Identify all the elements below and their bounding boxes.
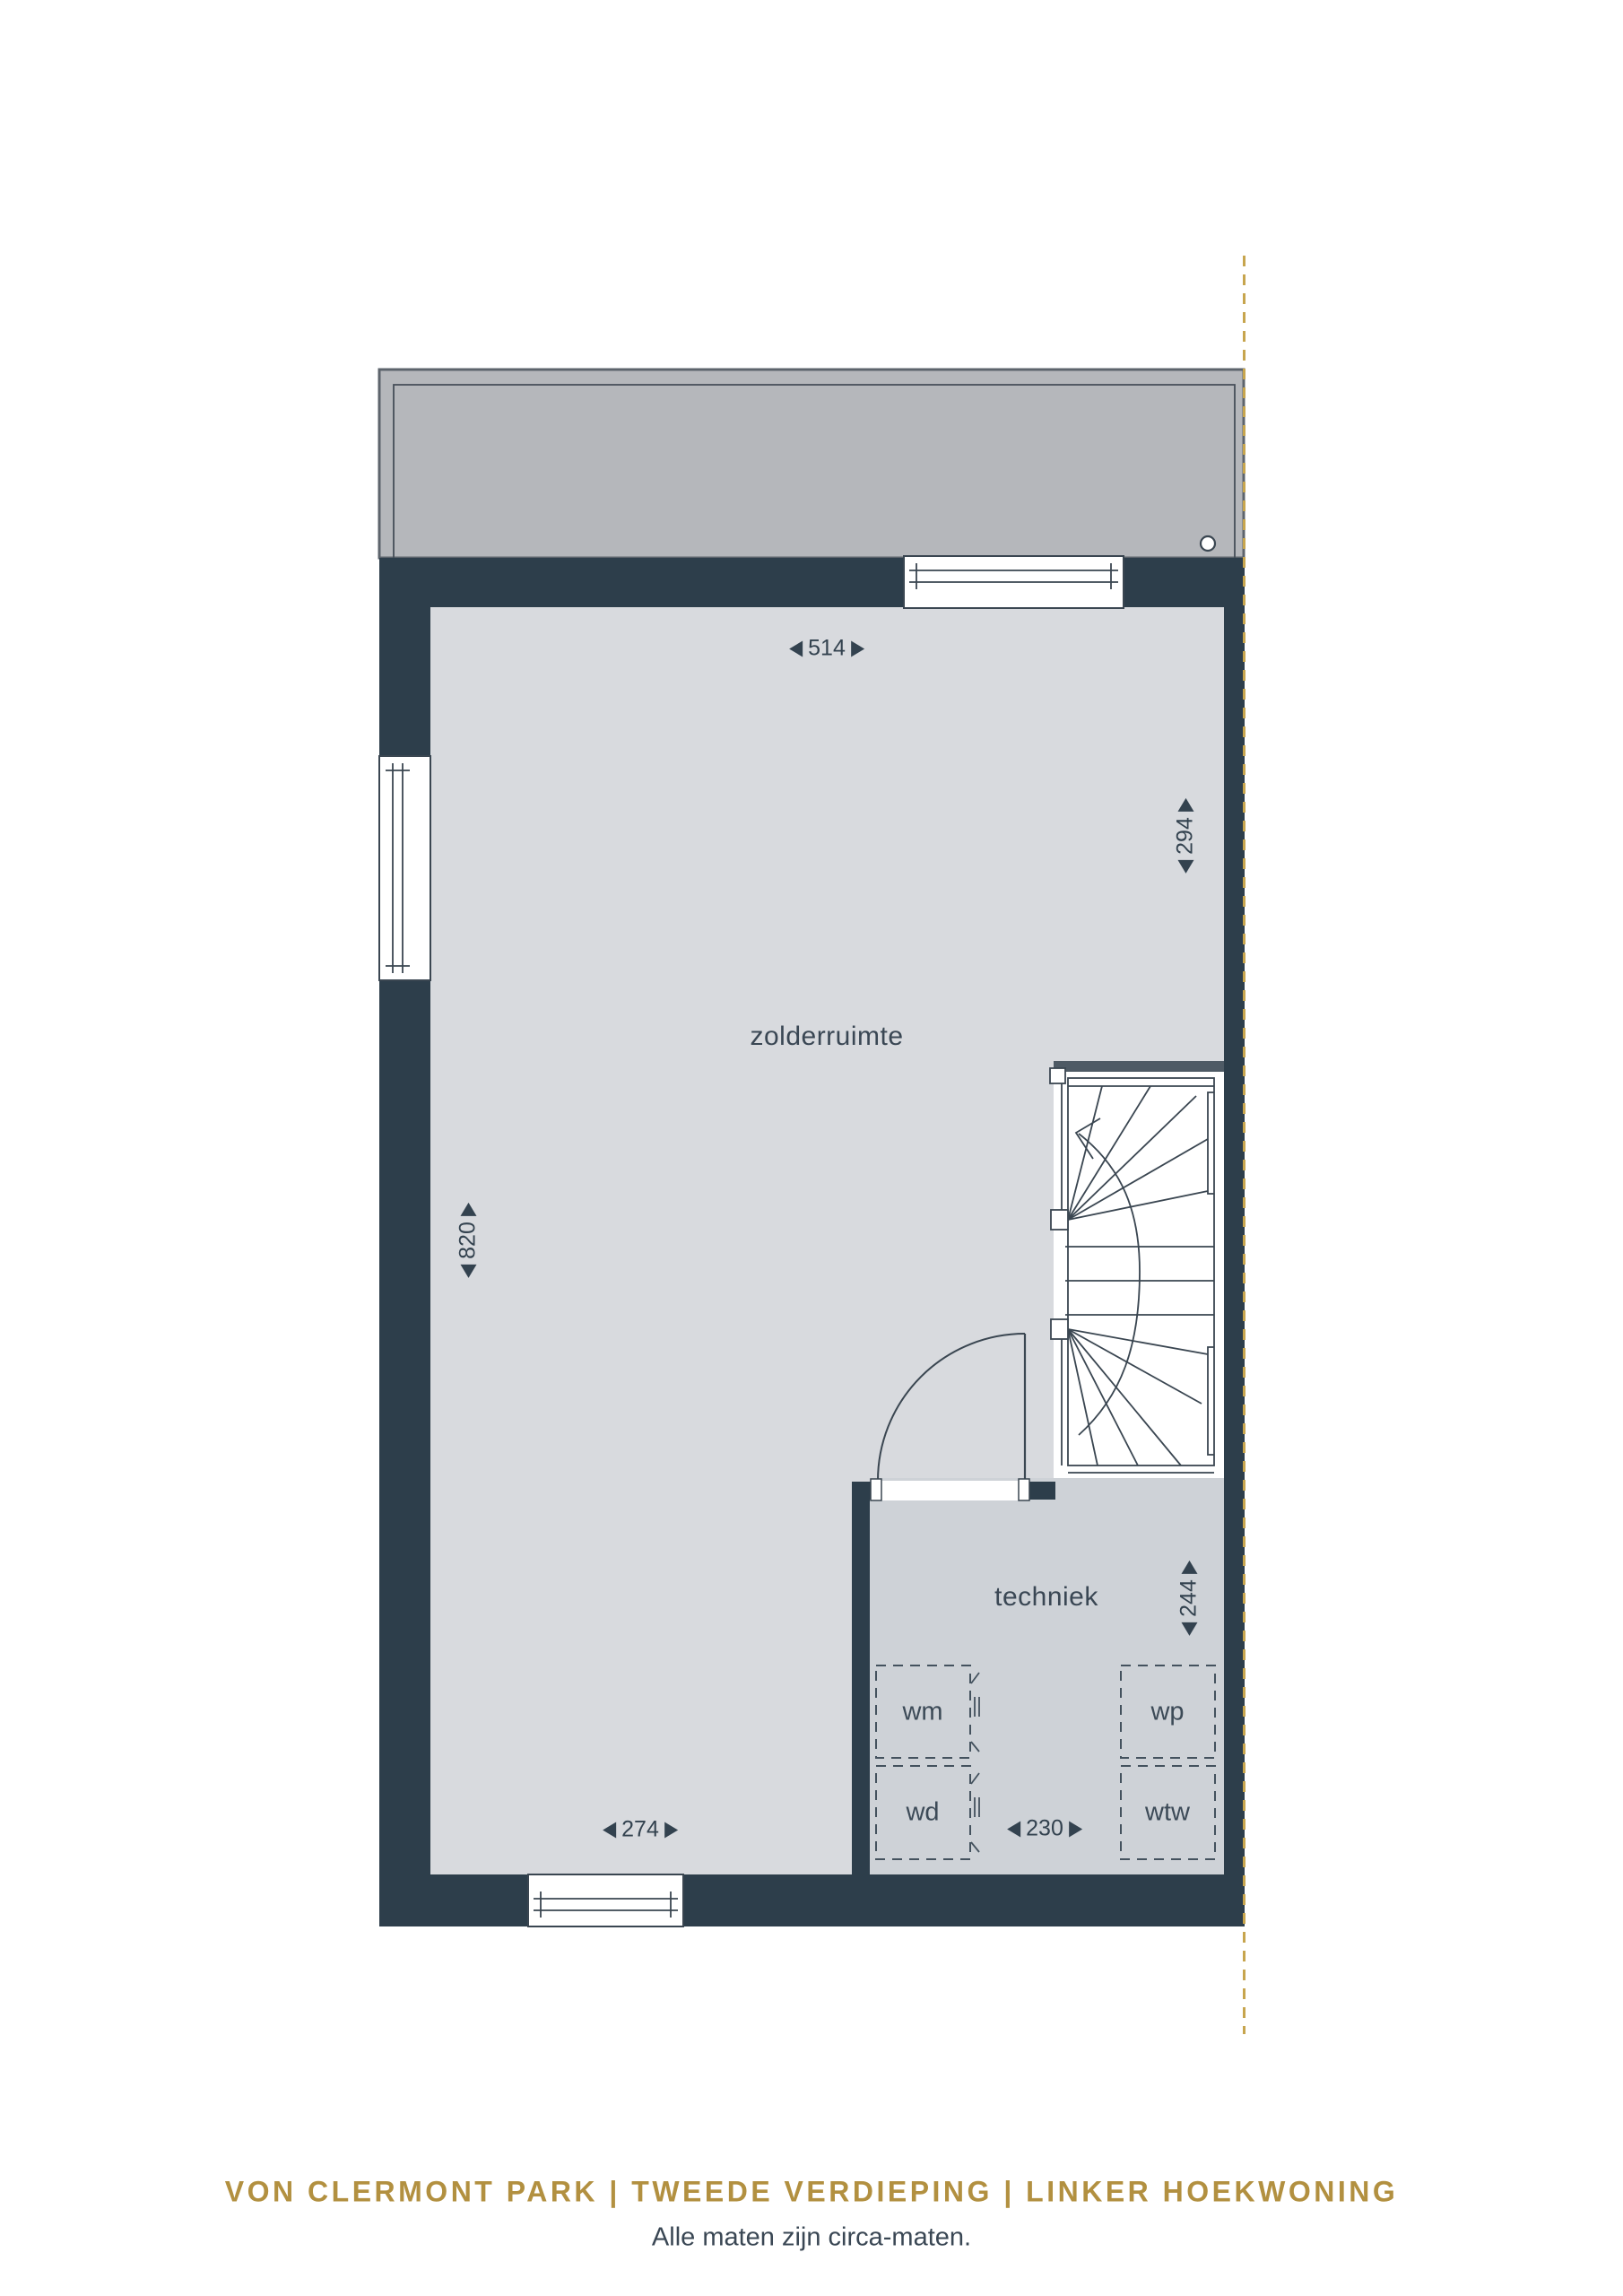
arrow-right-icon — [851, 640, 864, 657]
arrow-up-icon — [1181, 1561, 1197, 1574]
arrow-right-icon — [1069, 1821, 1082, 1837]
dimension-value: 820 — [456, 1222, 482, 1259]
dimension-zolder-height-right: 294 — [1173, 798, 1199, 874]
floorplan-page: zolderruimte techniek wm wd wp wtw 514 2… — [0, 0, 1623, 2296]
appliance-label-wd: wd — [906, 1798, 939, 1828]
arrow-left-icon — [1007, 1821, 1020, 1837]
arrow-down-icon — [1177, 860, 1193, 874]
dimension-zolder-width-bottom: 274 — [603, 1817, 678, 1843]
dimension-value: 274 — [621, 1817, 659, 1843]
arrow-up-icon — [460, 1203, 476, 1216]
window-top — [904, 556, 1124, 608]
arrow-right-icon — [664, 1822, 678, 1838]
arrow-down-icon — [1181, 1622, 1197, 1636]
arrow-up-icon — [1177, 798, 1193, 812]
arrow-left-icon — [603, 1822, 616, 1838]
arrow-down-icon — [460, 1265, 476, 1278]
dimension-value: 230 — [1026, 1816, 1063, 1842]
dimension-techniek-height: 244 — [1176, 1561, 1202, 1636]
window-left — [379, 756, 430, 980]
appliance-label-wm: wm — [902, 1698, 942, 1727]
dimension-zolder-height-left: 820 — [456, 1203, 482, 1278]
appliance-label-wtw: wtw — [1145, 1798, 1190, 1828]
interior-wall-vertical — [852, 1482, 870, 1874]
roof — [379, 370, 1244, 558]
room-label-zolderruimte: zolderruimte — [750, 1022, 903, 1052]
room-label-techniek: techniek — [994, 1582, 1098, 1613]
window-bottom — [528, 1874, 683, 1926]
dimension-techniek-width: 230 — [1007, 1816, 1082, 1842]
dimension-value: 514 — [808, 636, 846, 662]
appliance-label-wp: wp — [1150, 1698, 1184, 1727]
staircase — [1050, 1061, 1224, 1478]
roof-vent-icon — [1201, 536, 1215, 551]
floorplan-drawing — [0, 0, 1623, 2296]
dimension-zolder-width-top: 514 — [789, 636, 864, 662]
arrow-left-icon — [789, 640, 803, 657]
dimension-value: 244 — [1176, 1579, 1202, 1617]
dimension-value: 294 — [1173, 817, 1199, 855]
footer-note: Alle maten zijn circa-maten. — [652, 2223, 971, 2253]
footer-title: VON CLERMONT PARK | TWEEDE VERDIEPING | … — [225, 2176, 1398, 2209]
